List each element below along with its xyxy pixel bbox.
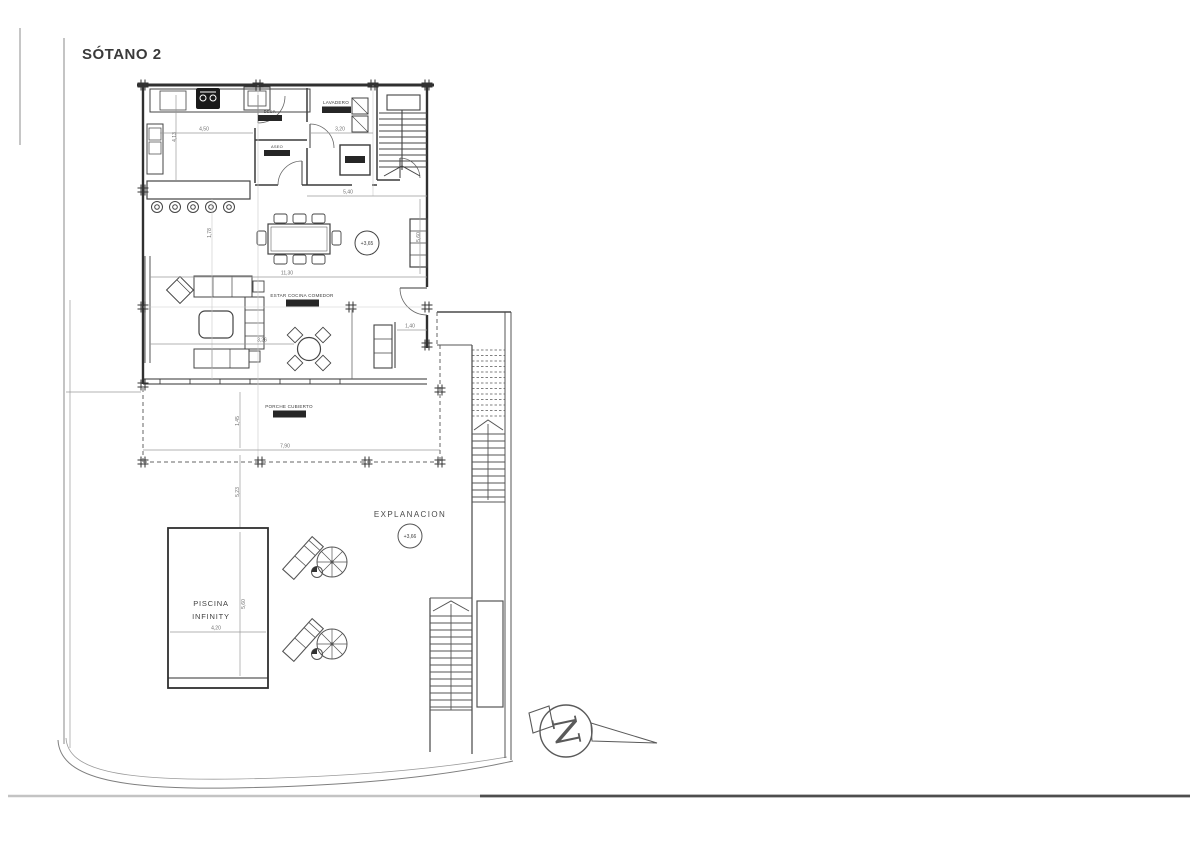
floor-plan-drawing: +3,65	[0, 0, 1200, 848]
coffee-table	[199, 311, 233, 338]
estar-level-value: +3,65	[361, 241, 374, 247]
area-badge	[286, 300, 319, 307]
label-lavadero: LAVADERO	[323, 100, 349, 105]
area-badge	[345, 156, 365, 163]
exterior-stairs-upper	[437, 345, 505, 598]
dim-pool-width: 4,20	[211, 626, 221, 632]
cooktop-icon	[196, 88, 220, 109]
bench-sofa	[374, 325, 392, 368]
round-table-set	[287, 327, 331, 371]
north-arrow: N	[529, 705, 657, 757]
area-badge	[264, 150, 290, 156]
lounger-parasol-1	[283, 537, 347, 580]
explanacion-level-value: +3,66	[404, 534, 417, 540]
laundry-appliances	[352, 98, 368, 132]
dim-porch-depth: 1,45	[235, 416, 241, 426]
area-badge	[322, 107, 351, 114]
kitchen	[147, 87, 310, 213]
dimension-lines	[143, 95, 440, 676]
dim-kitchen-depth: 4,13	[172, 132, 178, 142]
dim-porch-width: 7,90	[280, 444, 290, 450]
drawing-sheet: SÓTANO 2	[0, 0, 1200, 848]
dim-terrace-depth: 5,23	[235, 487, 241, 497]
explanacion-area: EXPLANACION +3,66	[374, 510, 446, 548]
armchair	[167, 277, 194, 304]
bar-stools	[152, 202, 235, 213]
interior-stairs	[379, 95, 427, 176]
sideboard-cabinet	[410, 219, 427, 267]
label-piscina-2: INFINITY	[192, 612, 230, 621]
dim-door-offset: 1,40	[405, 324, 415, 330]
area-badge	[258, 115, 282, 121]
dim-lavadero-width: 3,20	[335, 127, 345, 133]
dim-living-width: 11,30	[281, 271, 293, 277]
dim-island-offset: 1,78	[207, 228, 213, 238]
label-despensa: DESP.	[264, 109, 277, 114]
label-porche: PORCHE CUBIERTO	[265, 404, 313, 409]
lounger-parasol-2	[283, 619, 347, 662]
room-labels: LAVADERO DESP. ASEO ESTAR COCINA COMEDOR…	[258, 100, 351, 418]
label-explanacion: EXPLANACION	[374, 510, 446, 519]
sheet-frame	[8, 28, 1190, 796]
stair-landing-ramp	[477, 601, 503, 707]
sink-icon	[244, 87, 270, 110]
infinity-pool: PISCINA INFINITY	[168, 528, 268, 688]
level-marker-estar: +3,65	[355, 231, 379, 255]
label-aseo: ASEO	[271, 144, 283, 149]
kitchen-island	[147, 181, 250, 199]
dim-corridor-width: 5,40	[343, 190, 353, 196]
label-estar: ESTAR COCINA COMEDOR	[270, 293, 334, 298]
area-badge	[273, 411, 306, 418]
dim-pool-length: 5,60	[241, 599, 247, 609]
dim-kitchen-width: 4,50	[199, 127, 209, 133]
label-piscina-1: PISCINA	[193, 599, 229, 608]
sofa-set	[145, 256, 264, 368]
dim-living-depth: 5,60	[416, 232, 422, 242]
dim-sofa-zone: 3,26	[257, 338, 267, 344]
north-letter: N	[542, 712, 587, 749]
exterior-stairs-lower	[430, 598, 503, 754]
dining-table	[257, 214, 341, 264]
